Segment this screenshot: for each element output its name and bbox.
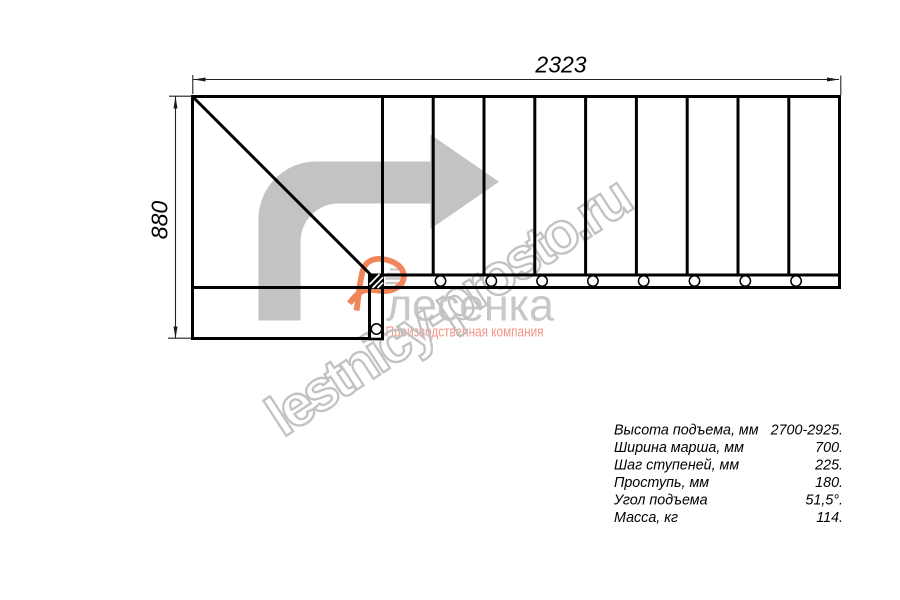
svg-text:Масса, кг: Масса, кг xyxy=(614,510,678,526)
svg-text:700.: 700. xyxy=(815,440,843,456)
svg-text:Шаг ступеней, мм: Шаг ступеней, мм xyxy=(614,457,739,473)
svg-text:2323: 2323 xyxy=(534,52,586,78)
svg-text:114.: 114. xyxy=(816,510,843,526)
svg-text:2700-2925.: 2700-2925. xyxy=(770,423,843,439)
svg-text:880: 880 xyxy=(147,201,173,240)
svg-text:51,5°.: 51,5°. xyxy=(805,492,843,508)
svg-text:Высота подъема, мм: Высота подъема, мм xyxy=(614,423,759,439)
svg-text:Проступь, мм: Проступь, мм xyxy=(614,475,709,491)
svg-text:225.: 225. xyxy=(814,457,843,473)
svg-text:Угол подъема: Угол подъема xyxy=(613,492,708,508)
svg-text:180.: 180. xyxy=(815,475,843,491)
svg-text:Ширина марша, мм: Ширина марша, мм xyxy=(614,440,744,456)
